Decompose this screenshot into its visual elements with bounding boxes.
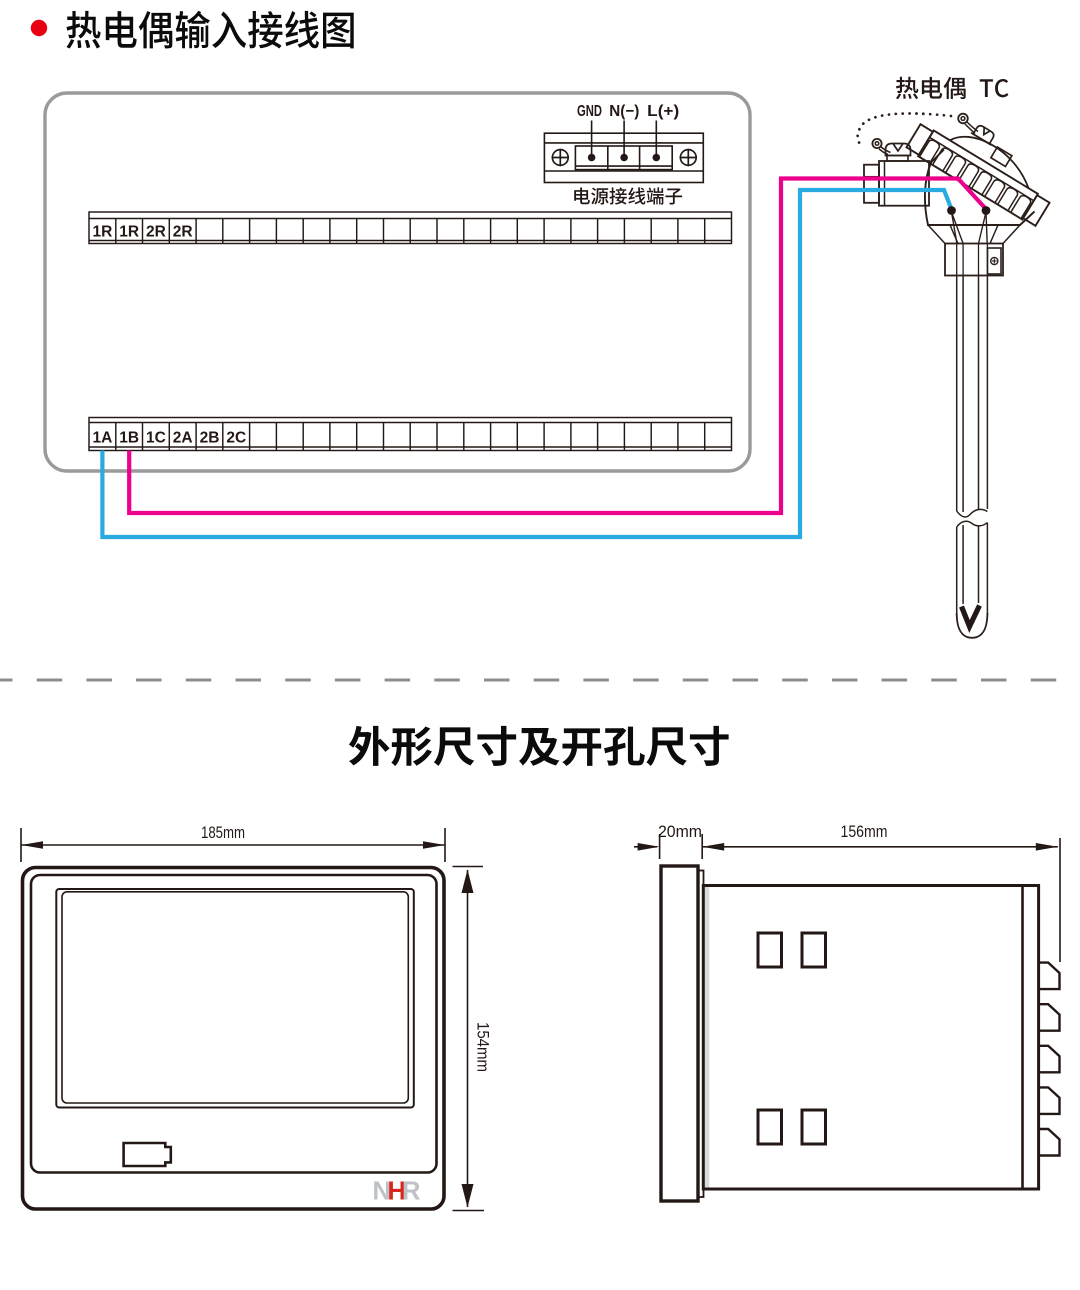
svg-text:156mm: 156mm bbox=[841, 822, 888, 841]
svg-text:2R: 2R bbox=[173, 224, 193, 241]
svg-text:154mm: 154mm bbox=[474, 1022, 493, 1072]
svg-text:R: R bbox=[402, 1178, 420, 1206]
svg-text:GND: GND bbox=[577, 103, 602, 120]
svg-text:L(+): L(+) bbox=[647, 103, 679, 120]
svg-text:1A: 1A bbox=[92, 430, 112, 447]
svg-text:1B: 1B bbox=[119, 430, 139, 447]
svg-text:N(−): N(−) bbox=[609, 103, 639, 120]
svg-text:20mm: 20mm bbox=[658, 823, 702, 841]
svg-text:2R: 2R bbox=[146, 224, 166, 241]
svg-text:1R: 1R bbox=[92, 224, 112, 241]
svg-text:1R: 1R bbox=[119, 224, 139, 241]
svg-text:2C: 2C bbox=[226, 430, 246, 447]
svg-text:2B: 2B bbox=[200, 430, 220, 447]
svg-text:185mm: 185mm bbox=[201, 823, 245, 842]
svg-text:2A: 2A bbox=[173, 430, 193, 447]
svg-text:1C: 1C bbox=[146, 430, 166, 447]
